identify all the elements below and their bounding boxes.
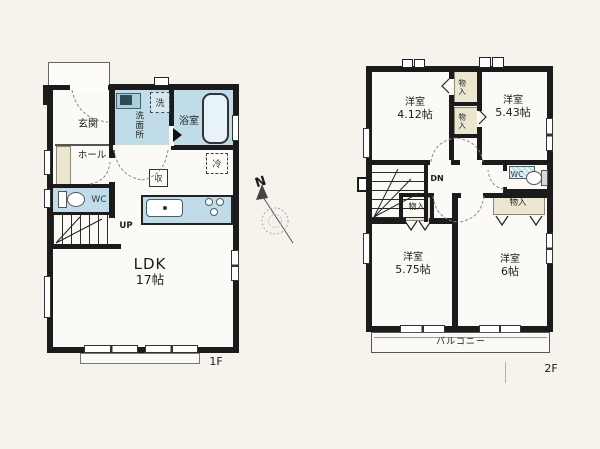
window bbox=[44, 150, 51, 175]
toilet-tank-icon bbox=[541, 170, 548, 186]
staircase-1f bbox=[53, 215, 116, 244]
room-se-label: 洋室 6帖 bbox=[477, 254, 543, 278]
room-name: 洋室 bbox=[382, 97, 448, 109]
room-ne-label: 洋室 5.43帖 bbox=[480, 95, 546, 119]
room-sw-label: 洋室 5.75帖 bbox=[379, 252, 447, 276]
closet-sw-label: 物入 bbox=[402, 202, 431, 211]
ldk-size: 17帖 bbox=[106, 273, 194, 287]
toilet-bowl-icon bbox=[67, 192, 85, 207]
wc-1f-label: WC bbox=[86, 195, 112, 205]
storage-mark-label: 収 bbox=[155, 173, 163, 184]
room-size: 6帖 bbox=[477, 266, 543, 279]
ldk-label: LDK 17帖 bbox=[106, 256, 194, 288]
closet-top-label: 物入 bbox=[457, 73, 466, 101]
washroom-label: 洗面所 bbox=[133, 104, 143, 146]
washbasin-bowl bbox=[120, 95, 132, 105]
floor2-label: 2F bbox=[537, 363, 565, 376]
door-opening bbox=[70, 85, 108, 91]
window bbox=[479, 57, 491, 68]
window bbox=[363, 128, 370, 158]
wall bbox=[109, 84, 239, 90]
genkan-label: 玄関 bbox=[63, 119, 113, 131]
small-window-bay bbox=[154, 77, 169, 86]
bath-door-mark bbox=[173, 128, 182, 142]
entry-step-line bbox=[55, 144, 109, 146]
stairs-up-label: UP bbox=[115, 222, 137, 232]
window bbox=[492, 57, 504, 68]
wall-niche bbox=[357, 177, 368, 192]
washer-mark-label: 洗 bbox=[155, 96, 164, 109]
wall bbox=[366, 66, 372, 332]
fridge-space-box: 冷 bbox=[206, 153, 228, 174]
toilet-bowl-icon bbox=[526, 171, 542, 185]
wall bbox=[399, 193, 434, 197]
window bbox=[232, 115, 239, 141]
sliding-window bbox=[84, 345, 138, 353]
room-name: 洋室 bbox=[480, 95, 546, 107]
wall bbox=[449, 102, 482, 106]
closet-se-label: 物入 bbox=[498, 199, 538, 209]
door-opening bbox=[449, 79, 454, 95]
wall bbox=[366, 66, 553, 72]
room-size: 5.43帖 bbox=[480, 107, 546, 120]
wc-2f-label: WC bbox=[507, 171, 527, 180]
room-name: 洋室 bbox=[379, 252, 447, 264]
stairs-dn-label: DN bbox=[427, 174, 447, 183]
stove-burner bbox=[205, 198, 213, 206]
room-nw-label: 洋室 4.12帖 bbox=[382, 97, 448, 121]
balcony-label: バルコニー bbox=[430, 337, 492, 347]
sink-drain bbox=[163, 206, 167, 210]
compass-rose-icon bbox=[256, 184, 293, 243]
sliding-window bbox=[145, 345, 198, 353]
room-size: 4.12帖 bbox=[382, 109, 448, 122]
window bbox=[231, 250, 239, 281]
fridge-mark-label: 冷 bbox=[212, 157, 221, 170]
stove-burner bbox=[210, 208, 218, 216]
wall bbox=[47, 212, 115, 215]
window bbox=[402, 59, 413, 68]
window bbox=[546, 118, 553, 151]
window bbox=[44, 276, 51, 318]
window bbox=[414, 59, 425, 68]
window bbox=[44, 189, 51, 208]
toilet-tank-icon bbox=[58, 191, 67, 208]
bath-label: 浴室 bbox=[174, 116, 204, 128]
wall bbox=[503, 189, 553, 193]
stove-burner bbox=[216, 198, 224, 206]
storage-box: 収 bbox=[149, 169, 168, 187]
wall bbox=[452, 193, 458, 332]
terrace-step bbox=[80, 353, 200, 364]
hall-label: ホール bbox=[66, 151, 118, 162]
door-opening bbox=[461, 193, 483, 198]
bathtub bbox=[202, 93, 229, 144]
door-opening bbox=[460, 160, 482, 165]
wall bbox=[547, 66, 553, 332]
floor1-label: 1F bbox=[202, 356, 230, 369]
ldk-name: LDK bbox=[106, 256, 194, 273]
compass-north-label: N bbox=[250, 174, 272, 194]
wall bbox=[47, 184, 115, 188]
room-name: 洋室 bbox=[477, 254, 543, 266]
scan-fold-line bbox=[505, 362, 506, 383]
window bbox=[546, 233, 553, 264]
door-opening bbox=[430, 160, 451, 165]
washer-space-box: 洗 bbox=[150, 92, 170, 113]
closet-bottom-label: 物入 bbox=[457, 109, 466, 134]
room-size: 5.75帖 bbox=[379, 264, 447, 277]
floor-plan-canvas: 洗 冷 収 玄関 ホール WC UP 洗面所 浴室 LDK 17帖 1F bbox=[0, 0, 600, 449]
window bbox=[363, 233, 370, 264]
wall bbox=[449, 134, 482, 138]
wall bbox=[47, 244, 121, 249]
